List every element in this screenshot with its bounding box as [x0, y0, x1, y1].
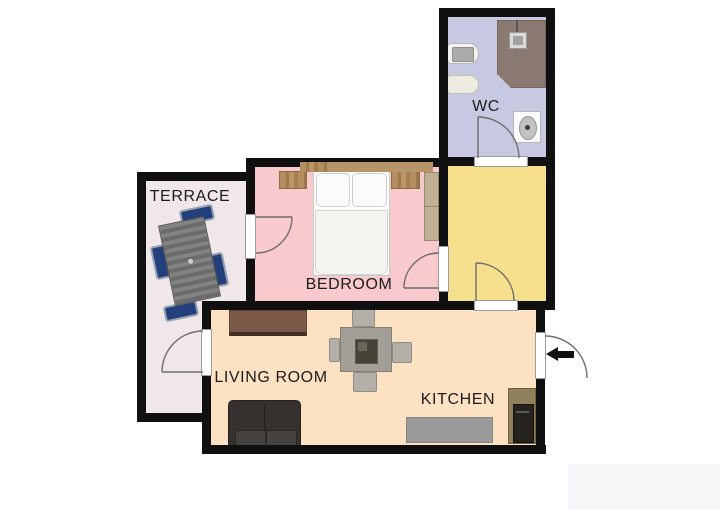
door-jamb-terrace-living	[201, 329, 212, 376]
shower-tick	[516, 51, 518, 57]
wardrobe	[424, 172, 439, 241]
headboard-shelf	[300, 162, 433, 172]
terrace-label: TERRACE	[150, 188, 231, 206]
door-jamb-hall-living	[474, 300, 518, 311]
wall-living-bottom	[202, 445, 546, 454]
toilet-cistern	[452, 47, 474, 62]
door-jamb-wc	[474, 156, 528, 167]
door-jamb-entrance	[535, 332, 546, 379]
door-jamb-bedroom-terrace	[245, 214, 256, 259]
sofa-back-split	[264, 404, 265, 430]
nightstand-right	[391, 171, 420, 189]
wall-terrace-left	[137, 172, 146, 422]
wall-wc-top	[439, 8, 555, 17]
toilet	[447, 43, 479, 64]
wall-terrace-bottom	[137, 413, 211, 422]
watermark-block	[568, 464, 720, 509]
dining-chair-top	[352, 308, 375, 327]
shower-head	[509, 32, 527, 49]
bedroom-label: BEDROOM	[306, 276, 393, 294]
pillow-right	[352, 173, 387, 207]
nightstand-left	[279, 171, 307, 189]
oven-appliance	[513, 404, 534, 443]
basin-drain	[525, 125, 530, 130]
sideboard	[229, 310, 307, 336]
kitchen-label: KITCHEN	[421, 391, 495, 409]
wash-basin	[513, 111, 541, 143]
dining-chair-left	[329, 338, 340, 362]
shower-head-inner	[513, 36, 523, 45]
dining-table	[340, 327, 392, 372]
door-jamb-bedroom-hall	[438, 246, 449, 292]
pillow-left	[316, 173, 350, 207]
bed-blanket	[315, 210, 388, 275]
shower-area	[497, 20, 546, 88]
bidet	[447, 75, 479, 94]
hallway-floor	[448, 166, 546, 301]
dining-chair-right	[392, 342, 412, 363]
umbrella-hole	[188, 258, 194, 264]
entrance-arrow-shaft	[557, 351, 574, 358]
wall-living-left	[202, 301, 211, 454]
sofa	[228, 400, 301, 447]
wardrobe-divider	[425, 206, 438, 207]
dining-chair-bottom	[353, 372, 377, 392]
wc-label: WC	[472, 98, 500, 116]
wall-terrace-top	[137, 172, 255, 181]
kitchen-unit	[508, 388, 536, 444]
dining-table-center-highlight	[358, 342, 367, 351]
floor-plan: WC TERRACE BEDROOM LIVING ROOM KITCHEN	[0, 0, 720, 509]
kitchen-counter	[406, 417, 493, 443]
living-room-label: LIVING ROOM	[214, 369, 327, 387]
dining-table-center	[355, 339, 378, 364]
oven-handle	[516, 411, 529, 413]
